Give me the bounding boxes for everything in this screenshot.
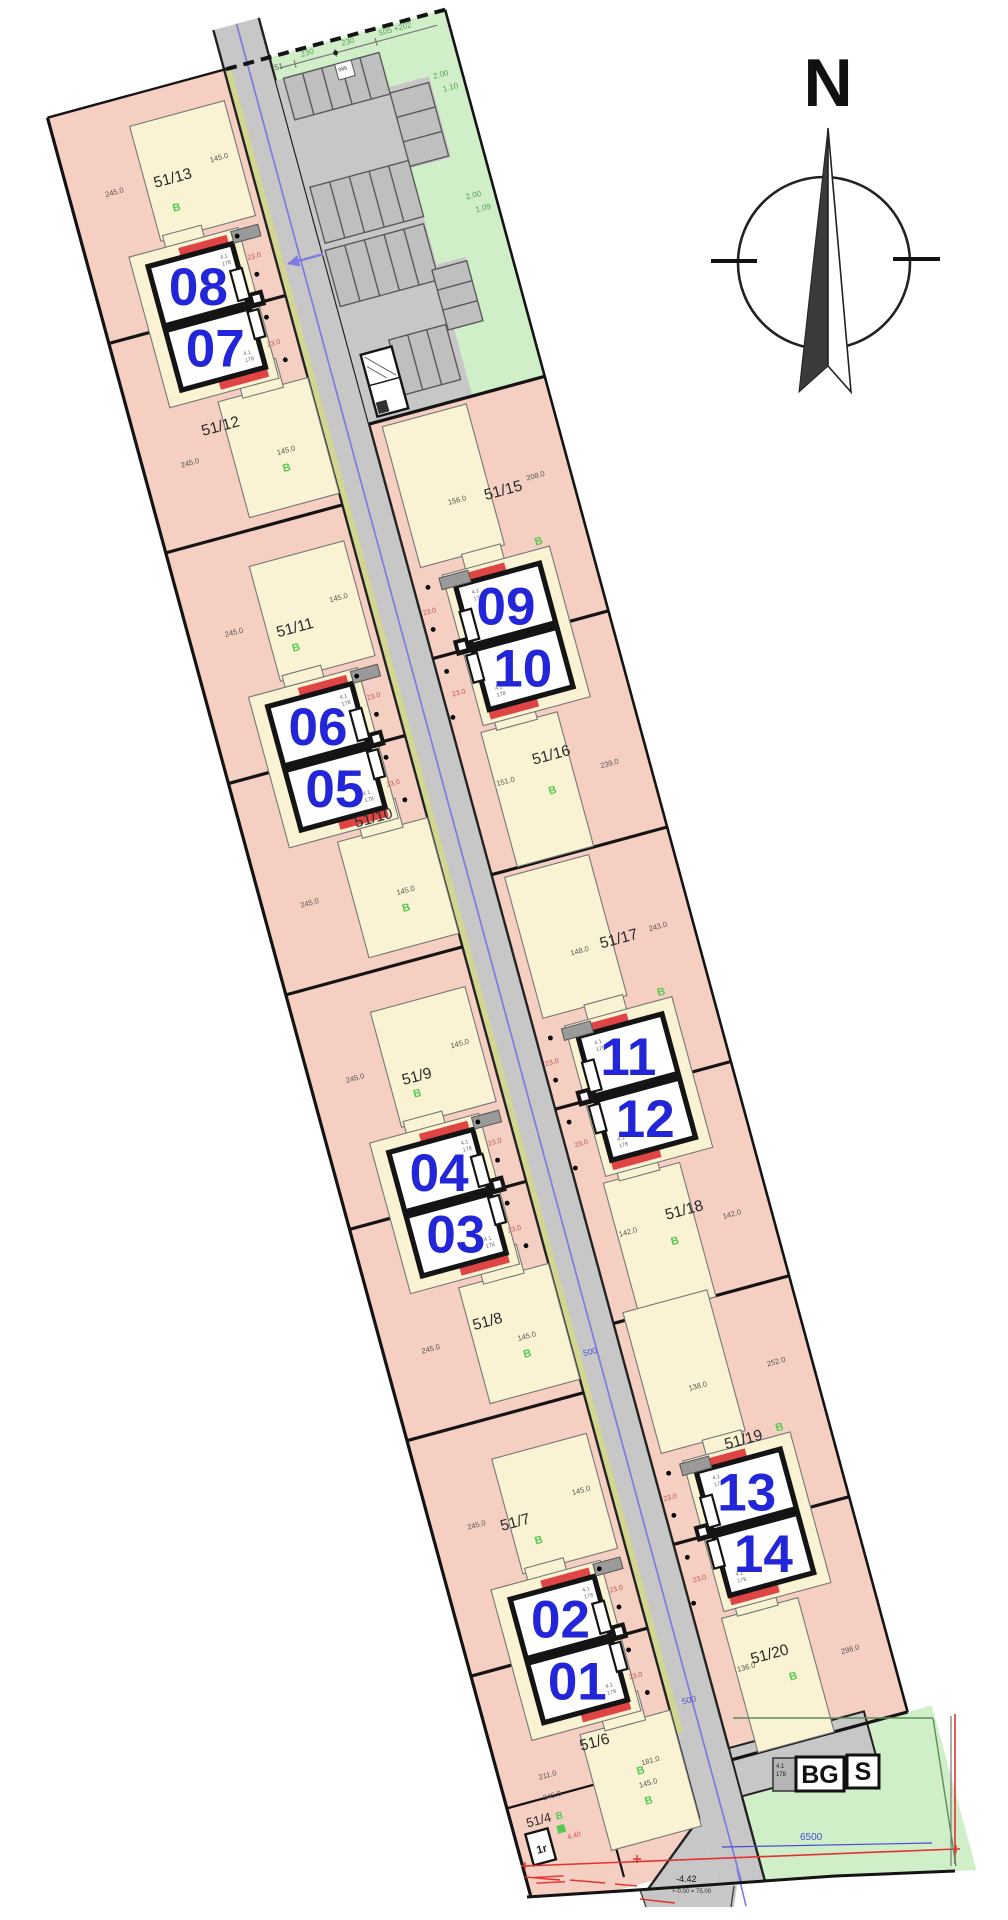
svg-text:178: 178	[776, 1772, 787, 1778]
svg-text:12: 12	[616, 1090, 675, 1149]
svg-text:06: 06	[289, 698, 348, 757]
svg-text:02: 02	[531, 1591, 590, 1650]
svg-text:07: 07	[186, 320, 245, 379]
svg-text:10: 10	[493, 639, 552, 698]
svg-text:03: 03	[426, 1206, 485, 1265]
svg-text:6500: 6500	[800, 1832, 823, 1843]
svg-text:+-0.00 = 75.00: +-0.00 = 75.00	[672, 1889, 712, 1895]
svg-text:4.1: 4.1	[776, 1764, 785, 1770]
svg-text:09: 09	[477, 578, 536, 637]
svg-text:08: 08	[169, 258, 228, 317]
svg-text:BG: BG	[801, 1761, 839, 1789]
svg-text:05: 05	[305, 760, 364, 819]
svg-text:13: 13	[717, 1463, 776, 1522]
svg-text:S: S	[855, 1758, 872, 1786]
svg-text:14: 14	[734, 1525, 793, 1584]
svg-text:11: 11	[600, 1028, 656, 1087]
svg-text:N: N	[803, 45, 852, 121]
svg-text:01: 01	[548, 1652, 607, 1711]
svg-text:-4.42: -4.42	[676, 1874, 697, 1884]
svg-text:04: 04	[410, 1144, 469, 1203]
